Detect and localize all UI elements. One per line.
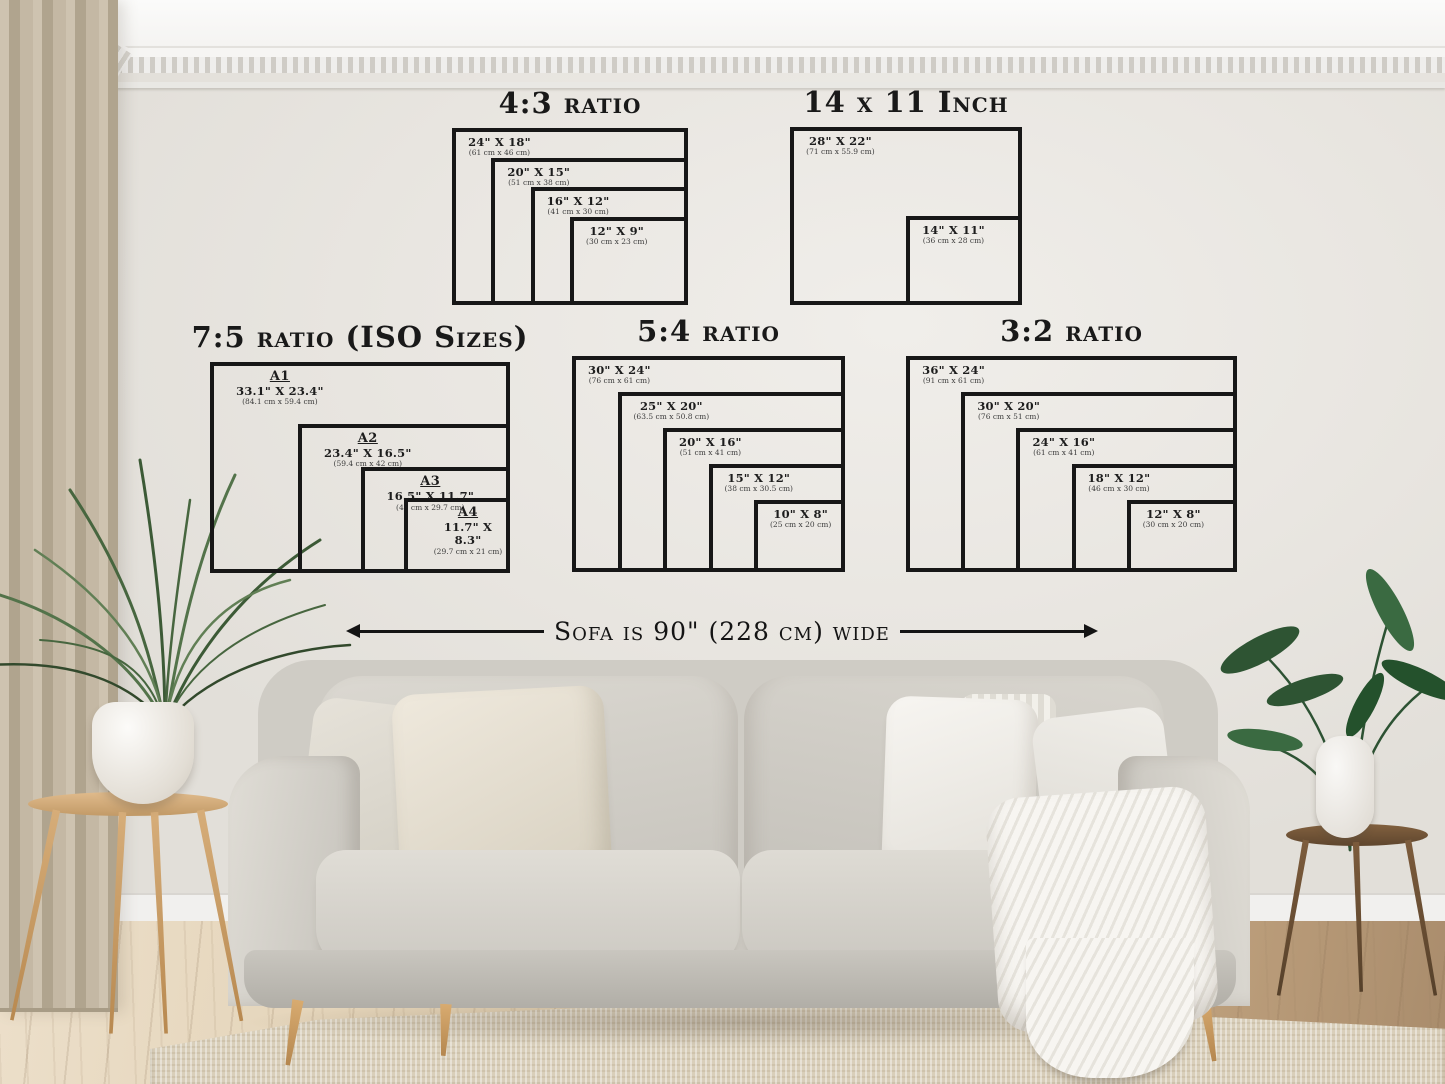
size-centimeters: (76 cm x 61 cm) [588, 377, 651, 386]
size-label: 20" x 16"(51 cm x 41 cm) [679, 436, 742, 458]
size-label: 14" x 11"(36 cm x 28 cm) [922, 224, 985, 246]
size-inches: 11.7" x 8.3" [430, 521, 506, 547]
size-label: 18" x 12"(46 cm x 30 cm) [1088, 472, 1151, 494]
size-label: 16" x 12"(41 cm x 30 cm) [547, 195, 610, 217]
size-chart-title: 14 x 11 Inch [803, 85, 1008, 119]
size-rect-12x8: 12" x 8"(30 cm x 20 cm) [1127, 500, 1237, 572]
paper-size-name: A2 [324, 432, 412, 447]
ceiling [0, 0, 1445, 50]
size-centimeters: (71 cm x 55.9 cm) [806, 148, 875, 157]
size-centimeters: (51 cm x 41 cm) [679, 449, 742, 458]
size-inches: 12" x 9" [586, 225, 647, 238]
size-label: A411.7" x 8.3"(29.7 cm x 21 cm) [430, 506, 506, 556]
size-chart-14x11: 14 x 11 Inch 28" x 22"(71 cm x 55.9 cm)1… [790, 127, 1022, 305]
size-rect-10x8: 10" x 8"(25 cm x 20 cm) [754, 500, 845, 572]
size-centimeters: (30 cm x 20 cm) [1143, 521, 1204, 530]
size-chart-title: 7:5 ratio (ISO Sizes) [192, 320, 529, 354]
size-label: 24" x 18"(61 cm x 46 cm) [468, 136, 531, 158]
crown-molding [106, 46, 1445, 88]
size-centimeters: (29.7 cm x 21 cm) [430, 548, 506, 557]
size-label: 12" x 9"(30 cm x 23 cm) [586, 225, 647, 247]
size-chart-title: 5:4 ratio [637, 314, 780, 348]
size-label: 15" x 12"(38 cm x 30.5 cm) [725, 472, 794, 494]
size-rect-12x9: 12" x 9"(30 cm x 23 cm) [570, 217, 688, 305]
size-centimeters: (25 cm x 20 cm) [770, 521, 831, 530]
size-label: 25" x 20"(63.5 cm x 50.8 cm) [634, 400, 710, 422]
size-label: 30" x 24"(76 cm x 61 cm) [588, 364, 651, 386]
size-centimeters: (46 cm x 30 cm) [1088, 485, 1151, 494]
arrow-right-line [900, 630, 1084, 633]
arrow-left-line [360, 630, 544, 633]
size-label: A133.1" x 23.4"(84.1 cm x 59.4 cm) [236, 370, 324, 407]
paper-size-name: A4 [430, 506, 506, 521]
size-chart-title: 4:3 ratio [499, 86, 642, 120]
paper-size-name: A1 [236, 370, 324, 385]
planter-pot [92, 702, 194, 804]
paper-size-name: A3 [387, 475, 475, 490]
size-label: 28" x 22"(71 cm x 55.9 cm) [806, 135, 875, 157]
size-label: 10" x 8"(25 cm x 20 cm) [770, 508, 831, 530]
size-centimeters: (36 cm x 28 cm) [922, 237, 985, 246]
size-centimeters: (76 cm x 51 cm) [977, 413, 1040, 422]
vase [1316, 736, 1374, 838]
size-inches: 20" x 15" [507, 166, 570, 179]
size-label: A223.4" x 16.5"(59.4 cm x 42 cm) [324, 432, 412, 469]
size-label: 20" x 15"(51 cm x 38 cm) [507, 166, 570, 188]
size-rect-14x11: 14" x 11"(36 cm x 28 cm) [906, 216, 1022, 305]
size-label: 12" x 8"(30 cm x 20 cm) [1143, 508, 1204, 530]
size-chart-7-5-iso: 7:5 ratio (ISO Sizes) A133.1" x 23.4"(84… [210, 362, 510, 573]
size-label: 36" x 24"(91 cm x 61 cm) [922, 364, 985, 386]
size-label: 30" x 20"(76 cm x 51 cm) [977, 400, 1040, 422]
sofa-width-label: Sofa is 90" (228 cm) wide [554, 617, 890, 646]
size-label: 24" x 16"(61 cm x 41 cm) [1032, 436, 1095, 458]
size-centimeters: (30 cm x 23 cm) [586, 238, 647, 247]
size-centimeters: (84.1 cm x 59.4 cm) [236, 398, 324, 407]
size-centimeters: (91 cm x 61 cm) [922, 377, 985, 386]
size-rect-A4: A411.7" x 8.3"(29.7 cm x 21 cm) [404, 498, 510, 573]
size-chart-title: 3:2 ratio [1000, 314, 1143, 348]
sofa-width-arrow: Sofa is 90" (228 cm) wide [360, 610, 1084, 652]
size-chart-5-4: 5:4 ratio 30" x 24"(76 cm x 61 cm)25" x … [572, 356, 845, 572]
size-chart-4-3: 4:3 ratio 24" x 18"(61 cm x 46 cm)20" x … [452, 128, 688, 305]
size-centimeters: (63.5 cm x 50.8 cm) [634, 413, 710, 422]
size-chart-3-2: 3:2 ratio 36" x 24"(91 cm x 61 cm)30" x … [906, 356, 1237, 572]
size-centimeters: (61 cm x 41 cm) [1032, 449, 1095, 458]
size-centimeters: (38 cm x 30.5 cm) [725, 485, 794, 494]
throw-blanket-hanging [1026, 938, 1194, 1078]
